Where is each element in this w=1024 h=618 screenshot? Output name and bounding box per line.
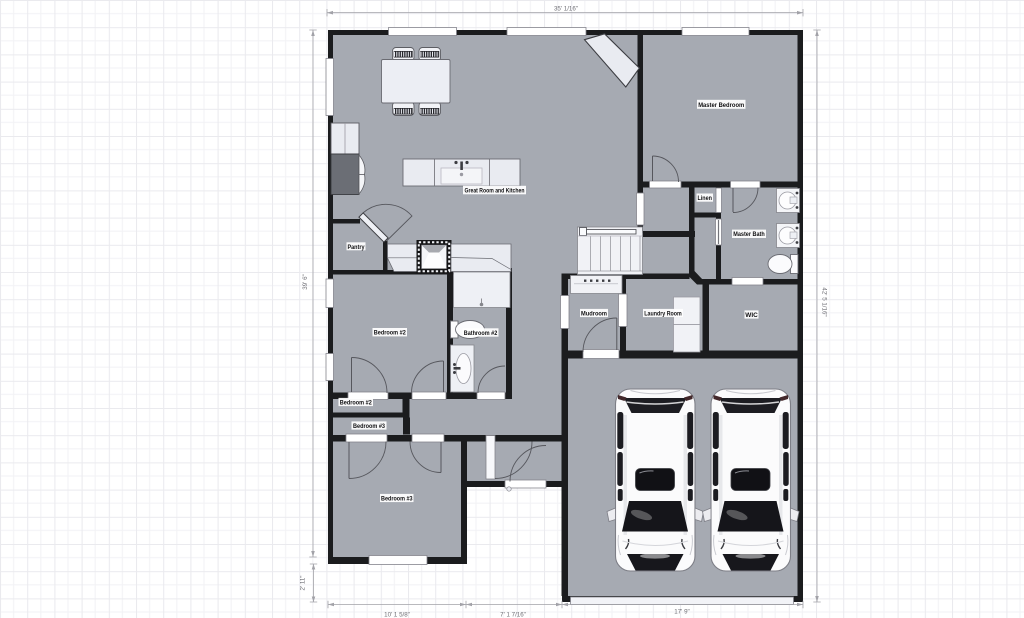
svg-text:Linen: Linen [697, 195, 712, 202]
svg-text:Pantry: Pantry [348, 244, 365, 251]
svg-text:Mudroom: Mudroom [581, 310, 607, 317]
svg-text:10' 1 5/8": 10' 1 5/8" [384, 612, 410, 618]
svg-text:Master Bath: Master Bath [733, 231, 765, 238]
svg-text:Great Room and Kitchen: Great Room and Kitchen [465, 188, 525, 195]
svg-text:Bedroom #2: Bedroom #2 [340, 399, 372, 406]
svg-text:Bathroom #2: Bathroom #2 [464, 330, 498, 337]
svg-text:7' 1 7/16": 7' 1 7/16" [500, 612, 526, 618]
svg-text:17' 9": 17' 9" [674, 609, 689, 616]
svg-text:WIC: WIC [745, 312, 758, 319]
svg-text:Master Bedroom: Master Bedroom [698, 102, 744, 109]
svg-text:2' 11": 2' 11" [300, 576, 307, 591]
svg-text:Laundry Room: Laundry Room [644, 310, 682, 317]
svg-text:Bedroom #2: Bedroom #2 [374, 330, 406, 337]
svg-text:42' 5 1/16": 42' 5 1/16" [821, 287, 828, 316]
svg-text:Bedroom #3: Bedroom #3 [381, 495, 413, 502]
svg-text:Bedroom #3: Bedroom #3 [353, 423, 385, 430]
svg-text:39' 6": 39' 6" [302, 274, 309, 289]
svg-text:35' 1/16": 35' 1/16" [554, 6, 578, 13]
